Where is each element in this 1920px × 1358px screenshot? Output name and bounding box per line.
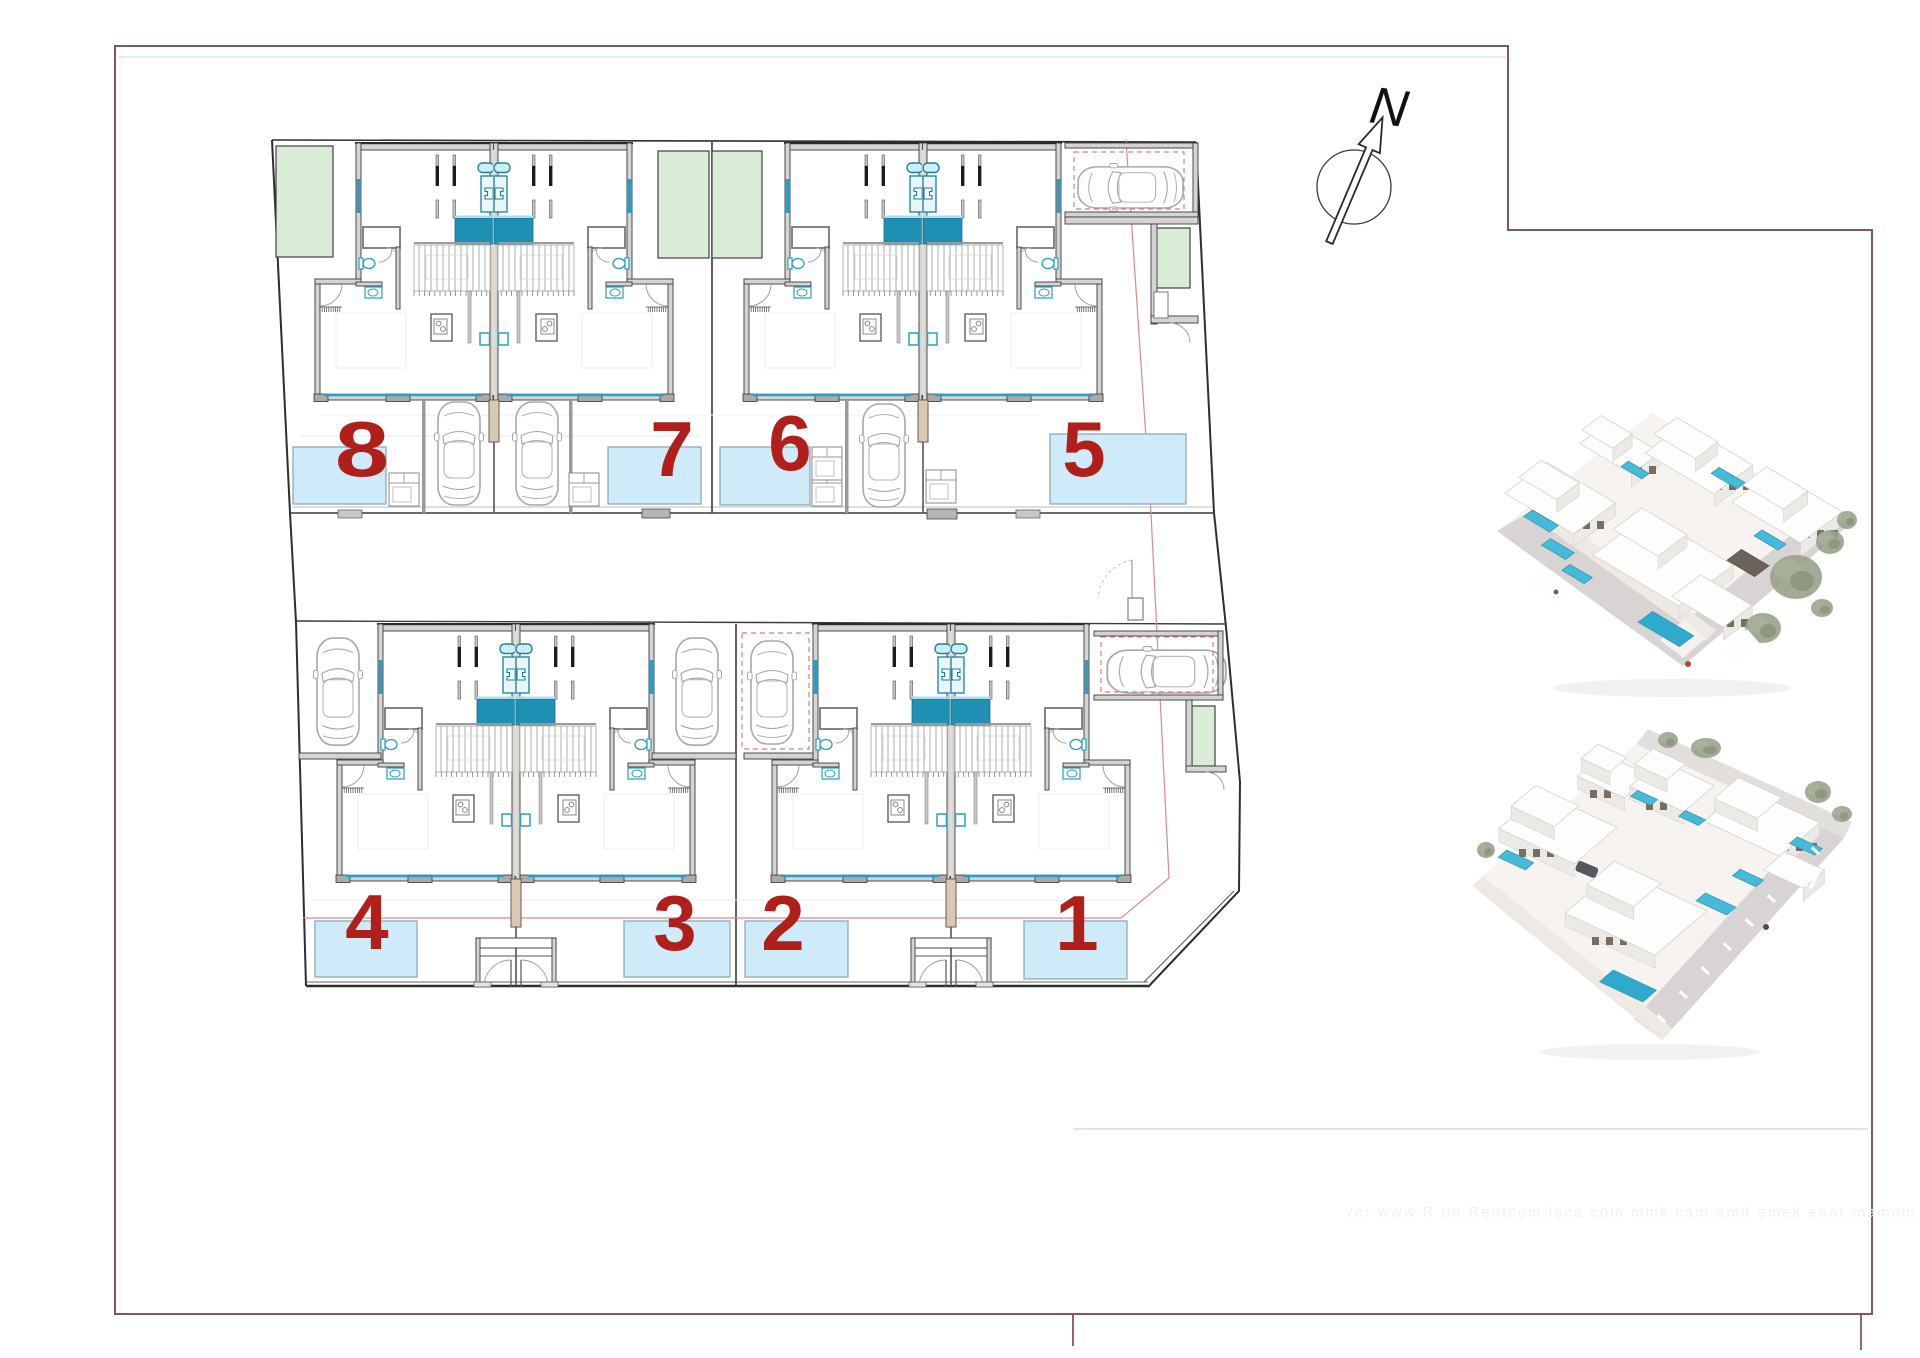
svg-text:4: 4 — [345, 878, 388, 966]
svg-text:1: 1 — [1055, 879, 1098, 967]
svg-text:5: 5 — [1062, 405, 1105, 493]
svg-text:7: 7 — [650, 405, 693, 493]
svg-text:3: 3 — [653, 879, 696, 967]
svg-text:ver www R on Rentcom loca: ver www R on Rentcom loca com mmk cam am… — [1345, 1204, 1920, 1221]
svg-text:2: 2 — [761, 879, 804, 967]
svg-text:6: 6 — [768, 399, 811, 487]
svg-text:8: 8 — [335, 405, 389, 493]
